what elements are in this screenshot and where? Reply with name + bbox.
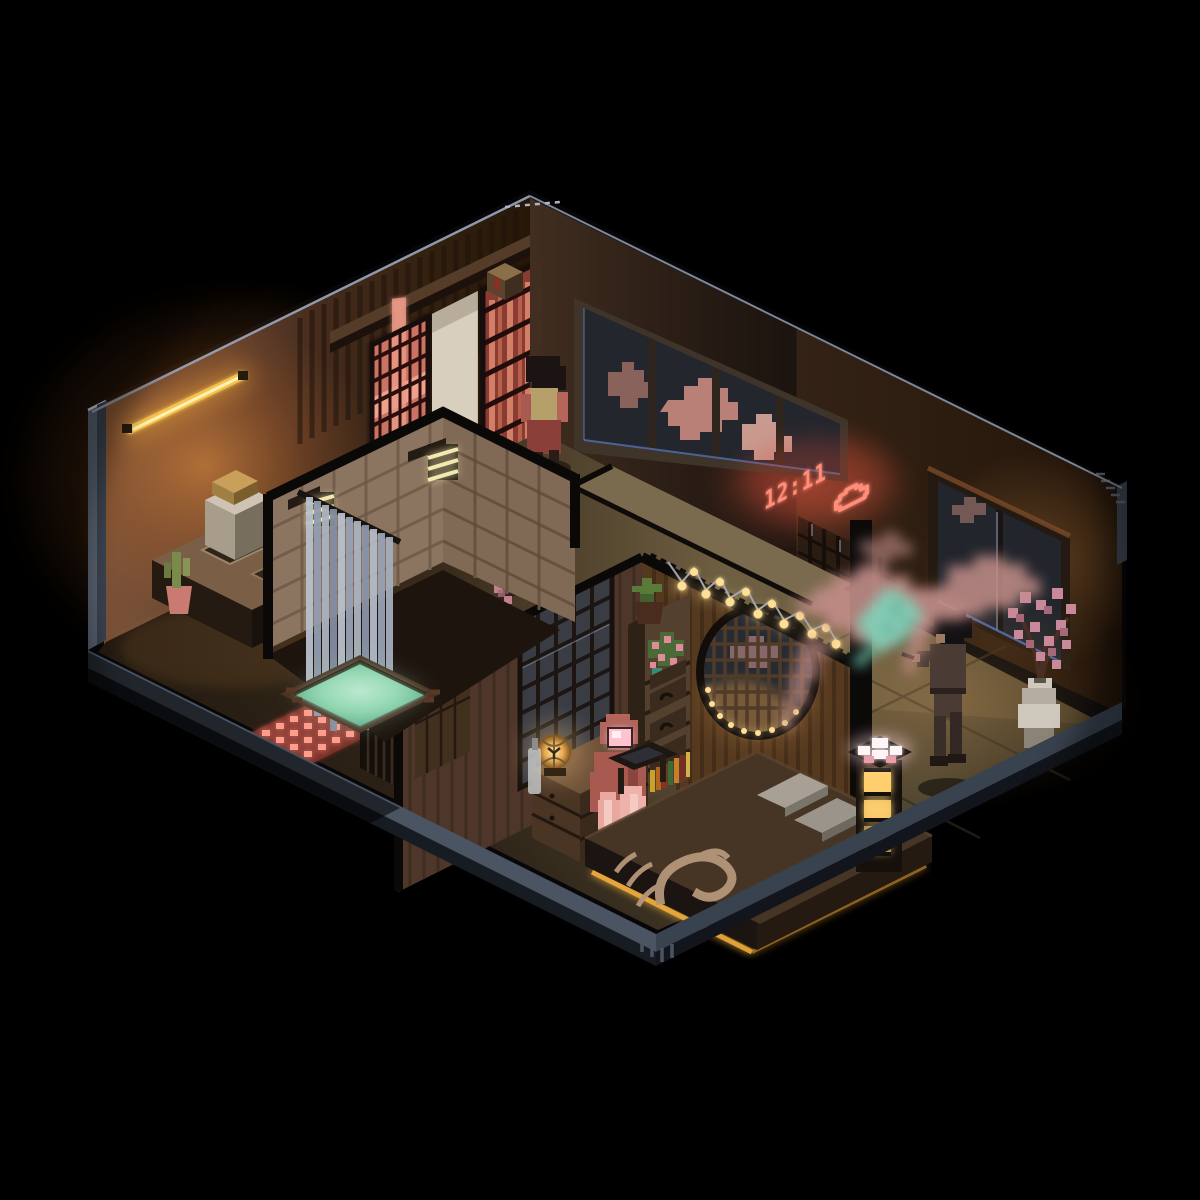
curtain-stripe — [322, 505, 329, 690]
bulb — [796, 612, 804, 620]
bulb — [754, 610, 763, 619]
book — [668, 761, 673, 785]
figure-living-body — [930, 644, 966, 718]
cactus-pot — [166, 586, 192, 614]
bulb — [780, 620, 789, 629]
book — [686, 752, 690, 777]
figure-entry-arm-left — [521, 394, 531, 422]
bulb — [768, 600, 776, 608]
clock-projection: 12:11 — [740, 440, 890, 520]
moon-rim-bulb — [769, 727, 775, 733]
bulb — [678, 582, 687, 591]
curtain-stripe — [386, 537, 393, 687]
tube-cap-right — [238, 371, 248, 380]
lantern-base — [544, 768, 566, 776]
moon-rim-bulb — [755, 730, 761, 736]
bulb — [690, 568, 698, 576]
figure-living-leg-left — [934, 716, 946, 758]
book — [680, 755, 685, 780]
pedestal-body — [1018, 704, 1060, 728]
bulb — [832, 640, 841, 649]
book — [650, 770, 655, 792]
voxel-apartment-scene: { "scene": { "title": "Isometric voxel a… — [0, 0, 1200, 1200]
pedestal-mouth — [1034, 678, 1046, 683]
dresser-knob-2 — [550, 816, 555, 821]
desk-leg-2 — [660, 756, 666, 782]
bathroom-right-rim — [570, 474, 580, 548]
vent-box-tape — [494, 278, 500, 290]
moon-rim-bulb — [709, 701, 715, 707]
dresser-knob-1 — [550, 794, 555, 799]
moon-rim-bulb — [741, 728, 747, 734]
bottle-body — [528, 748, 541, 794]
figure-living-boot-right — [948, 754, 966, 763]
desk-leg-1 — [618, 768, 624, 794]
planter-leaves-dark — [640, 594, 654, 602]
bulb — [726, 598, 735, 607]
bulb — [742, 588, 750, 596]
pedestal-mid — [1022, 688, 1056, 704]
figure-entry-vest — [530, 388, 558, 422]
figure-living-belt — [930, 688, 966, 694]
bulb — [808, 630, 817, 639]
lit-compartment-1 — [864, 770, 891, 794]
figure-living-leg-right — [950, 712, 962, 756]
moon-rim-bulb — [717, 713, 723, 719]
planter-pot — [634, 602, 664, 624]
cactus-arm-right2 — [183, 558, 190, 576]
figure-bedroom-visor-shine — [612, 731, 621, 738]
bulb — [702, 590, 711, 599]
figure-living-boot-left — [930, 756, 948, 766]
lit-compartment-2 — [864, 800, 891, 820]
bottle-neck — [532, 738, 538, 750]
flower-lamp — [846, 732, 914, 768]
cactus-stem — [172, 552, 181, 588]
figure-entry-skirt — [527, 420, 561, 454]
scene-canvas: 12:11 — [0, 0, 1200, 1200]
cactus-arm-left — [164, 562, 171, 578]
pane-mullion-1 — [648, 334, 656, 452]
book — [674, 758, 679, 783]
bathroom-left-rim — [263, 494, 273, 659]
pane-mullion-2 — [712, 363, 720, 462]
bulb — [716, 578, 724, 586]
moon-rim-bulb — [728, 722, 734, 728]
curtain-stripe — [306, 497, 313, 695]
moon-rim-bulb — [705, 687, 711, 693]
figure-living-face — [936, 634, 945, 643]
figure-entry-arm-right — [557, 392, 568, 422]
